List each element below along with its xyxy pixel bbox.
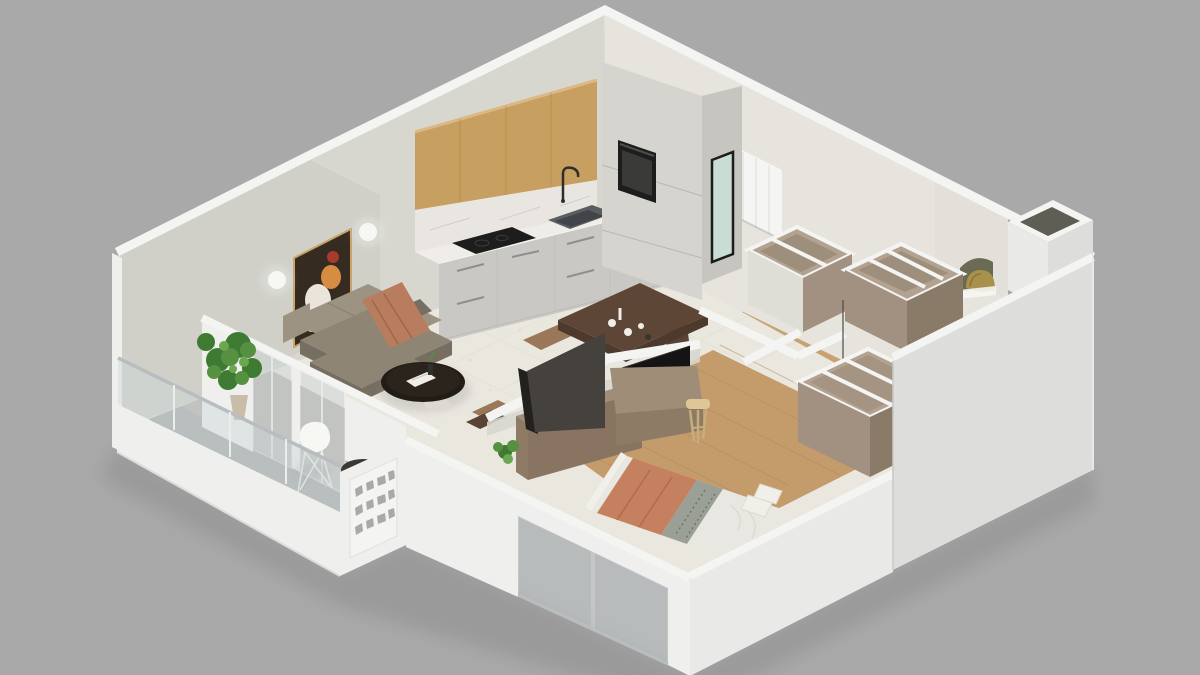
full-length-mirror	[712, 152, 733, 262]
wall-sconce	[353, 217, 383, 247]
faucet-base	[561, 199, 565, 203]
vase	[428, 364, 433, 375]
apartment-isometric-render	[0, 0, 1200, 675]
wall-sconce	[262, 265, 292, 295]
wall-segment	[668, 570, 690, 675]
